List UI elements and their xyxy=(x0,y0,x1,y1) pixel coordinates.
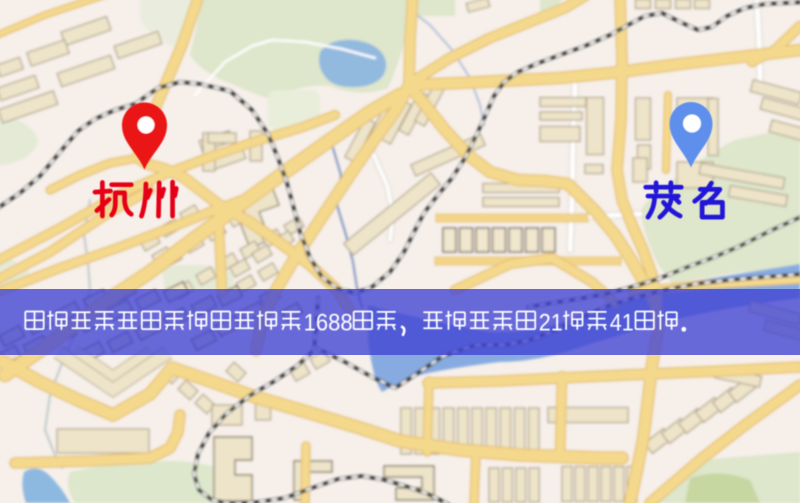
svg-text:21: 21 xyxy=(539,309,563,336)
svg-text:1688: 1688 xyxy=(304,309,353,336)
svg-text:41: 41 xyxy=(610,309,634,336)
